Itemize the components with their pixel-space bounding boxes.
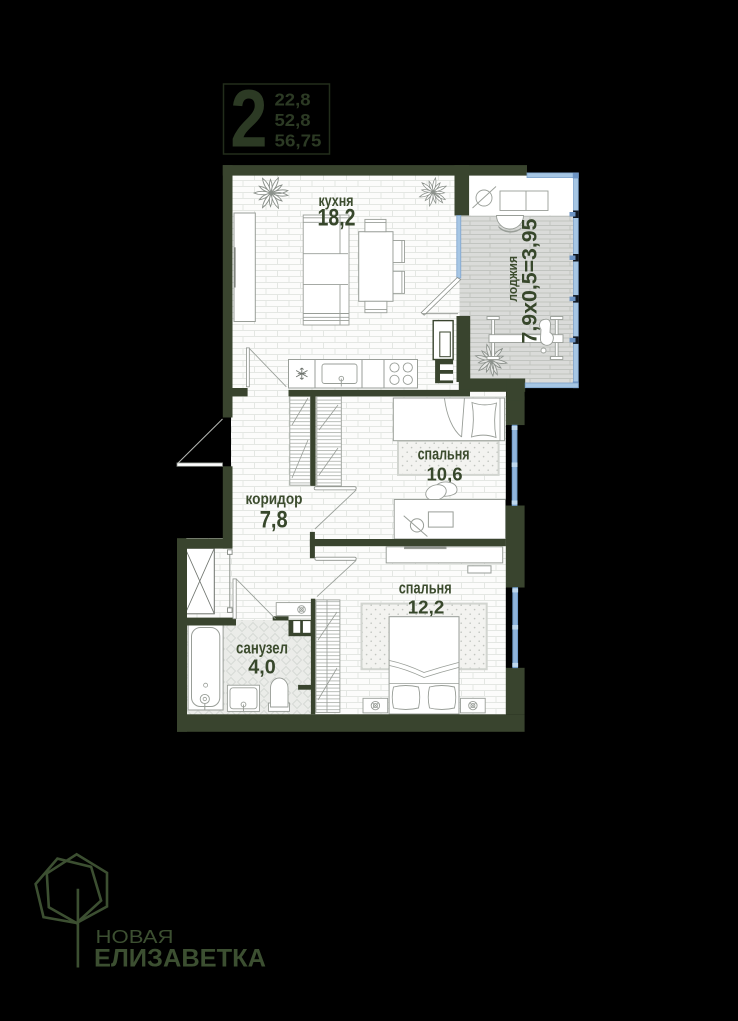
svg-text:спальня: спальня — [399, 579, 452, 597]
svg-text:7,9х0,5=3,95: 7,9х0,5=3,95 — [519, 218, 542, 343]
svg-text:22,8: 22,8 — [275, 90, 311, 110]
svg-text:санузел: санузел — [236, 639, 288, 657]
svg-text:7,8: 7,8 — [260, 507, 288, 534]
svg-text:18,2: 18,2 — [318, 205, 356, 232]
svg-text:4,0: 4,0 — [248, 656, 276, 678]
svg-text:52,8: 52,8 — [275, 110, 311, 130]
svg-text:56,75: 56,75 — [275, 131, 322, 151]
svg-text:спальня: спальня — [418, 446, 470, 464]
svg-text:2: 2 — [230, 74, 267, 165]
svg-text:12,2: 12,2 — [408, 597, 445, 618]
svg-text:коридор: коридор — [246, 491, 303, 508]
svg-text:ЕЛИЗАВЕТКА: ЕЛИЗАВЕТКА — [94, 945, 266, 973]
